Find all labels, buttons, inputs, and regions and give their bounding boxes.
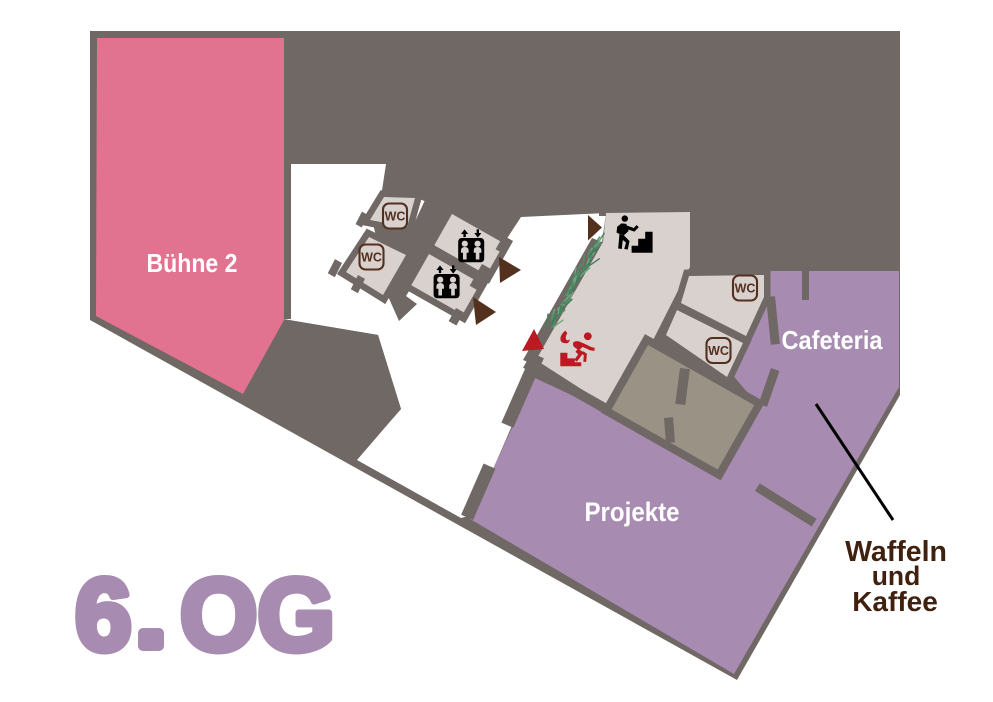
svg-text:WC: WC [361, 250, 382, 264]
svg-text:WC: WC [385, 209, 406, 223]
svg-text:Bühne 2: Bühne 2 [147, 248, 238, 278]
svg-text:WC: WC [708, 344, 729, 358]
svg-text:OG: OG [180, 558, 335, 672]
svg-text:WC: WC [735, 281, 756, 295]
svg-text:Cafeteria: Cafeteria [782, 325, 883, 355]
svg-text:Kaffee: Kaffee [852, 586, 938, 617]
svg-text:Projekte: Projekte [585, 497, 680, 527]
svg-text:6: 6 [75, 558, 132, 672]
